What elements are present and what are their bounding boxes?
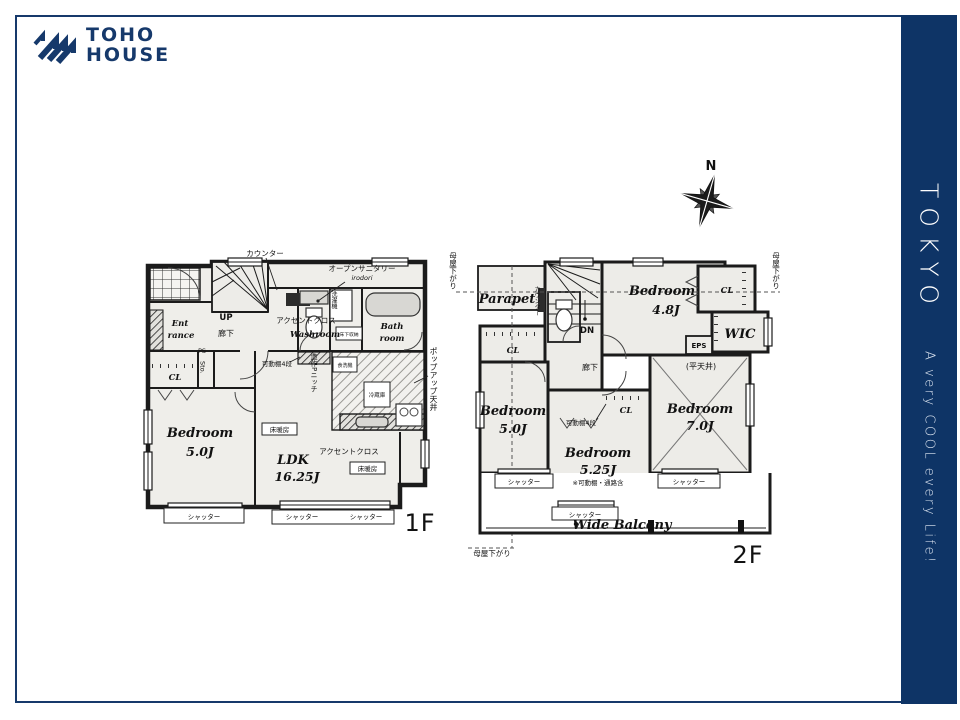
f1-washroom-label: Washroom bbox=[290, 330, 340, 340]
floor1-plan: 床下収納 食洗機 冷蔵庫 bbox=[144, 249, 436, 537]
f1-open-sanitary-sub: irodori bbox=[351, 274, 372, 282]
logo-word-toho: TOHO bbox=[86, 25, 170, 45]
compass-rose: N bbox=[674, 159, 741, 234]
f2-bed525-label: Bedroom bbox=[564, 446, 631, 461]
floorplan-canvas: N bbox=[0, 0, 960, 720]
f1-shoe-cabinet bbox=[150, 310, 163, 350]
f1-bedroom-label: Bedroom bbox=[166, 426, 233, 441]
f2-eps-label: EPS bbox=[692, 342, 707, 350]
f1-cl-label: CL bbox=[169, 373, 182, 383]
f2-cl-top-label: CL bbox=[721, 286, 734, 296]
f1-popup-ceiling-label: ポップアップ天井 bbox=[429, 347, 437, 411]
f2-bed525-note: ※可動棚・通路含 bbox=[573, 478, 624, 487]
f1-sto-label: Sto. bbox=[199, 361, 206, 374]
f1-accent-cloth-2: アクセントクロス bbox=[319, 447, 379, 456]
compass-north-letter: N bbox=[706, 159, 717, 174]
f1-counter-label: カウンター bbox=[246, 249, 284, 258]
f1-ps-label: PS bbox=[198, 347, 206, 355]
f1-fridge-label: 冷蔵庫 bbox=[369, 391, 386, 399]
toho-house-logo: TOHO HOUSE bbox=[32, 22, 170, 68]
f2-bed50-size: 5.0J bbox=[499, 421, 528, 436]
f2-flat-ceiling-label: (平天井) bbox=[686, 361, 716, 371]
f1-entrance-label-1: Ent bbox=[171, 319, 189, 329]
f2-bed50-label: Bedroom bbox=[479, 404, 546, 419]
f1-bedroom-size: 5.0J bbox=[186, 444, 215, 459]
f2-bed70-label: Bedroom bbox=[666, 402, 733, 417]
f1-bathtub bbox=[366, 293, 420, 316]
f2-hallway-label: 廊下 bbox=[582, 362, 598, 372]
f2-bed48-size: 4.8J bbox=[652, 302, 681, 317]
f2-counter-label: カウンター bbox=[533, 286, 539, 316]
f1-entrance-porch bbox=[150, 268, 200, 300]
f2-bed48-label: Bedroom bbox=[628, 284, 695, 299]
f1-entrance-label-2: rance bbox=[168, 331, 195, 341]
f2-shelf-label: 可動棚4段 bbox=[566, 418, 597, 427]
f2-cl-mid-label: CL bbox=[620, 406, 633, 416]
f1-stairs bbox=[212, 262, 268, 312]
f1-shelf-label: 可動棚4段 bbox=[262, 359, 293, 368]
f2-shutter-2: シャッター bbox=[673, 477, 706, 486]
f1-bath-label-2: room bbox=[380, 334, 405, 344]
f1-basin bbox=[300, 291, 328, 304]
f2-dn-label: DN bbox=[580, 326, 594, 336]
banner-tagline: A very COOL every Life! bbox=[922, 351, 937, 565]
f2-parapet-label: Parapet bbox=[478, 292, 536, 307]
toho-house-logo-icon bbox=[32, 22, 76, 68]
f2-shutter-1: シャッター bbox=[508, 477, 541, 486]
f1-bath-label-1: Bath bbox=[380, 322, 404, 332]
f1-underfloor-label: 床下収納 bbox=[339, 331, 358, 338]
f2-cl-left-label: CL bbox=[507, 346, 520, 356]
f1-floor-heating-2: 床暖房 bbox=[358, 464, 378, 473]
side-banner: TOKYO A very COOL every Life! bbox=[901, 15, 957, 704]
f1-kitchen: 食洗機 冷蔵庫 bbox=[332, 352, 424, 430]
f1-niche-label: 造作Pニッチ bbox=[310, 353, 317, 392]
f1-shutter-2: シャッター bbox=[286, 512, 319, 521]
f2-balcony-label: Wide Balcony bbox=[572, 518, 673, 533]
f1-ldk-label: LDK bbox=[276, 453, 309, 468]
f1-up-label: UP bbox=[219, 313, 232, 323]
f1-laundry-label: 洗濯機 bbox=[330, 291, 336, 309]
f1-shutter-3: シャッター bbox=[350, 512, 383, 521]
f2-moya-bottom-label: 母屋下がり bbox=[473, 548, 511, 558]
f2-toilet-fixture bbox=[556, 300, 572, 331]
flyer-page: TOHO HOUSE TOKYO A very COOL every Life!… bbox=[0, 0, 960, 720]
f1-accent-cloth-1: アクセントクロス bbox=[276, 316, 336, 325]
f1-shutter-1: シャッター bbox=[188, 512, 221, 521]
f1-hallway-label: 廊下 bbox=[218, 328, 234, 338]
f2-bed525-size: 5.25J bbox=[580, 462, 617, 477]
floor2-plan: Parapet DN 廊下 CL CL CL WIC EPS (平天井) Bed… bbox=[456, 258, 780, 569]
f1-dishwasher-label: 食洗機 bbox=[337, 362, 352, 369]
f2-floor-tag: 2F bbox=[732, 541, 763, 569]
f2-moya-right-label: 母屋下がり bbox=[772, 252, 780, 290]
f2-moya-left-label: 母屋下がり bbox=[449, 252, 457, 290]
f2-wic-label: WIC bbox=[724, 327, 756, 342]
banner-title: TOKYO bbox=[915, 183, 944, 313]
f1-floor-tag: 1F bbox=[404, 509, 435, 537]
f2-bed70-size: 7.0J bbox=[686, 418, 715, 433]
f1-floor-heating-1: 床暖房 bbox=[270, 425, 290, 434]
f1-ldk-size: 16.25J bbox=[274, 469, 320, 484]
logo-word-house: HOUSE bbox=[86, 45, 170, 65]
f1-open-sanitary-label: オープンサニタリー bbox=[328, 264, 395, 273]
